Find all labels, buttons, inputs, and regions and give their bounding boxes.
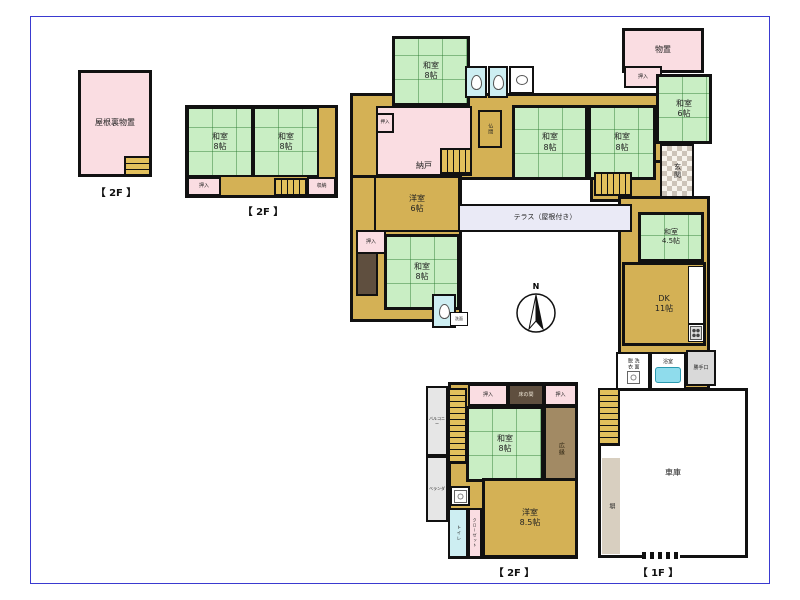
floor-label-south-2f: 【 2F 】 xyxy=(462,564,566,579)
terrace-label: テラス（屋根付き） xyxy=(514,213,577,222)
washitsu8-center-east-label: 和室 8帖 xyxy=(614,132,630,153)
toilet-icon xyxy=(471,75,482,90)
washitsu6-ne: 和室 6帖 xyxy=(656,74,712,144)
garage-stairs xyxy=(598,388,620,446)
senmen-datsui-label: 洗面 脱衣 xyxy=(627,358,640,370)
butsuma-label: 仏間 xyxy=(487,123,494,135)
wc-north-1 xyxy=(465,66,487,98)
south-oshiire-west: 押入 xyxy=(468,384,508,406)
senmen-datsui: 洗面 脱衣 xyxy=(616,352,650,390)
south-stairs xyxy=(448,388,467,464)
annex2f-oshiire-label: 押入 xyxy=(199,183,209,190)
floorplan: 屋根裏物置和室 8帖和室 8帖押入収納和室 8帖物置押入和室 6帖玄関納戸押入仏… xyxy=(0,0,800,600)
oshiire-ne-label: 押入 xyxy=(638,74,648,81)
annex2f-washitsu-right-label: 和室 8帖 xyxy=(278,132,294,153)
toilet-icon xyxy=(493,75,504,90)
washitsu8-center-west-label: 和室 8帖 xyxy=(542,132,558,153)
hei-fence-label: 塀 xyxy=(607,503,615,510)
yokushitsu: 浴室 xyxy=(650,352,686,390)
washitsu8-north-label: 和室 8帖 xyxy=(423,61,439,82)
monooki-label: 物置 xyxy=(655,45,671,55)
tokonoma-west xyxy=(356,252,378,296)
south-oshiire-east: 押入 xyxy=(544,384,577,406)
south-tokonoma: 床の間 xyxy=(508,384,544,406)
genkan: 玄関 xyxy=(660,144,694,198)
south-oshiire-west-label: 押入 xyxy=(483,392,493,399)
dk-label: DK 11帖 xyxy=(655,294,673,315)
south-closet: クローゼット xyxy=(468,508,482,558)
washer-icon xyxy=(454,490,467,503)
oshiire-nando-label: 押入 xyxy=(381,120,390,126)
washitsu45-label: 和室 4.5帖 xyxy=(662,228,680,246)
yoshitsu6: 洋室 6帖 xyxy=(374,176,460,232)
katteguchi-label: 勝手口 xyxy=(693,365,708,372)
yokushitsu-label: 浴室 xyxy=(663,359,673,366)
attic-stairs xyxy=(124,156,151,176)
annex2f-washitsu-right: 和室 8帖 xyxy=(253,107,319,177)
washitsu8-west-label: 和室 8帖 xyxy=(414,262,430,283)
compass-north-label: N xyxy=(511,283,561,291)
toilet-icon xyxy=(439,304,450,319)
annex2f-washitsu-left-label: 和室 8帖 xyxy=(212,132,228,153)
oshiire-west-label: 押入 xyxy=(366,239,376,246)
balcony-north: バルコニー xyxy=(426,386,448,456)
annex2f-stairs xyxy=(274,178,307,196)
balcony-north-label: バルコニー xyxy=(428,416,446,426)
floor-label-annex-2f: 【 2F 】 xyxy=(222,203,304,218)
south-yoshitsu85-label: 洋室 8.5帖 xyxy=(520,508,541,529)
washitsu6-ne-label: 和室 6帖 xyxy=(676,99,692,120)
washitsu8-center-east: 和室 8帖 xyxy=(588,105,656,180)
garage-gate-hatch xyxy=(642,552,680,559)
annex2f-shuno: 収納 xyxy=(307,177,336,196)
genkan-label: 玄関 xyxy=(672,163,681,179)
katteguchi: 勝手口 xyxy=(686,350,716,386)
annex2f-washitsu-left: 和室 8帖 xyxy=(187,107,253,177)
oshiire-nando: 押入 xyxy=(376,113,394,133)
senmen-mid-label: 洗面 xyxy=(455,316,463,321)
south-sink xyxy=(450,486,470,506)
floor-label-attic-2f: 【 2F 】 xyxy=(80,184,152,199)
washitsu8-center-west: 和室 8帖 xyxy=(512,105,588,180)
south-toire: トイレ xyxy=(448,508,468,558)
attic-storage-label: 屋根裏物置 xyxy=(95,118,135,128)
south-yoshitsu85: 洋室 8.5帖 xyxy=(482,478,578,558)
sink-room-north xyxy=(509,66,534,94)
sink-icon xyxy=(516,75,528,85)
south-washitsu8: 和室 8帖 xyxy=(466,406,544,482)
balcony-south: ベランダ xyxy=(426,456,448,522)
kitchen-stove xyxy=(688,324,704,342)
garage: 車庫 xyxy=(598,388,748,558)
genkan-stairs xyxy=(594,172,632,196)
balcony-south-label: ベランダ xyxy=(429,486,445,491)
senmen-mid: 洗面 xyxy=(450,312,468,326)
butsuma: 仏間 xyxy=(478,110,502,148)
tub-icon xyxy=(655,367,681,383)
washitsu45: 和室 4.5帖 xyxy=(638,212,704,262)
stove-icon xyxy=(690,326,702,340)
south-hiroen-label: 広縁 xyxy=(557,442,565,456)
nando-label: 納戸 xyxy=(416,161,432,171)
nando-stairs xyxy=(440,148,472,174)
washer-icon xyxy=(627,371,640,384)
kitchen-counter xyxy=(688,266,704,324)
garage-label: 車庫 xyxy=(665,468,681,478)
washitsu8-north: 和室 8帖 xyxy=(392,36,470,106)
yoshitsu6-label: 洋室 6帖 xyxy=(409,194,425,215)
south-oshiire-east-label: 押入 xyxy=(555,392,565,399)
compass-rose-icon xyxy=(514,291,558,335)
annex2f-shuno-label: 収納 xyxy=(316,183,326,190)
south-tokonoma-label: 床の間 xyxy=(518,392,533,399)
terrace: テラス（屋根付き） xyxy=(458,204,632,232)
hei-fence: 塀 xyxy=(602,458,620,554)
floor-label-main-1f: 【 1F 】 xyxy=(606,564,710,579)
wc-north-2 xyxy=(488,66,508,98)
south-washitsu8-label: 和室 8帖 xyxy=(497,434,513,455)
oshiire-west: 押入 xyxy=(356,230,386,254)
annex2f-oshiire: 押入 xyxy=(187,177,221,196)
compass: N xyxy=(511,283,561,335)
south-toire-label: トイレ xyxy=(455,525,461,542)
south-closet-label: クローゼット xyxy=(472,518,477,548)
